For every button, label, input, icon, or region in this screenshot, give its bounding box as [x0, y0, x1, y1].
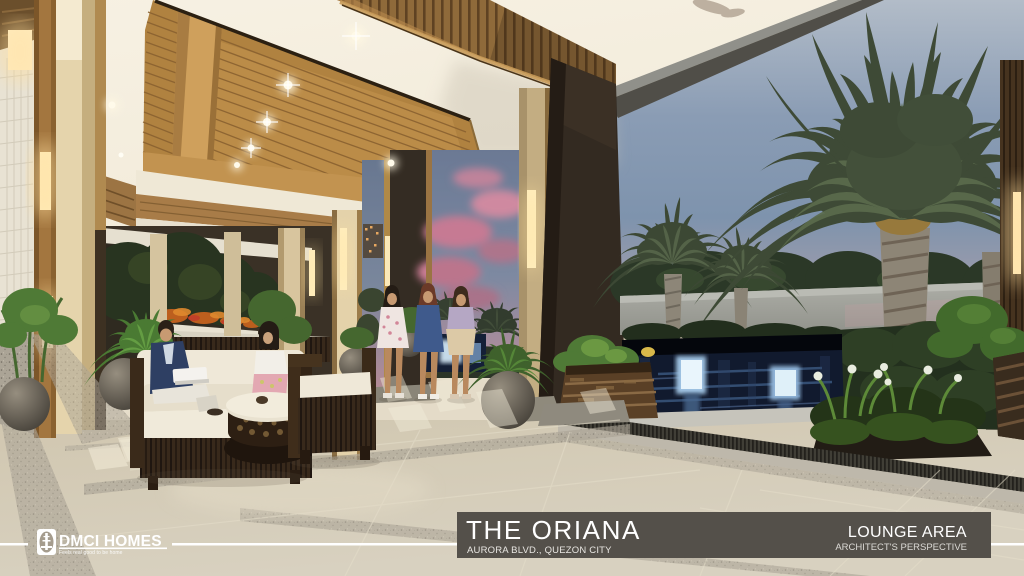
- svg-text:ARCHITECT'S PERSPECTIVE: ARCHITECT'S PERSPECTIVE: [835, 542, 967, 553]
- svg-text:Feels real good to be home: Feels real good to be home: [59, 550, 123, 556]
- svg-text:DMCI HOMES: DMCI HOMES: [59, 533, 162, 550]
- svg-text:LOUNGE AREA: LOUNGE AREA: [848, 524, 967, 541]
- svg-text:THE ORIANA: THE ORIANA: [466, 515, 641, 545]
- svg-text:AURORA BLVD., QUEZON CITY: AURORA BLVD., QUEZON CITY: [467, 545, 612, 556]
